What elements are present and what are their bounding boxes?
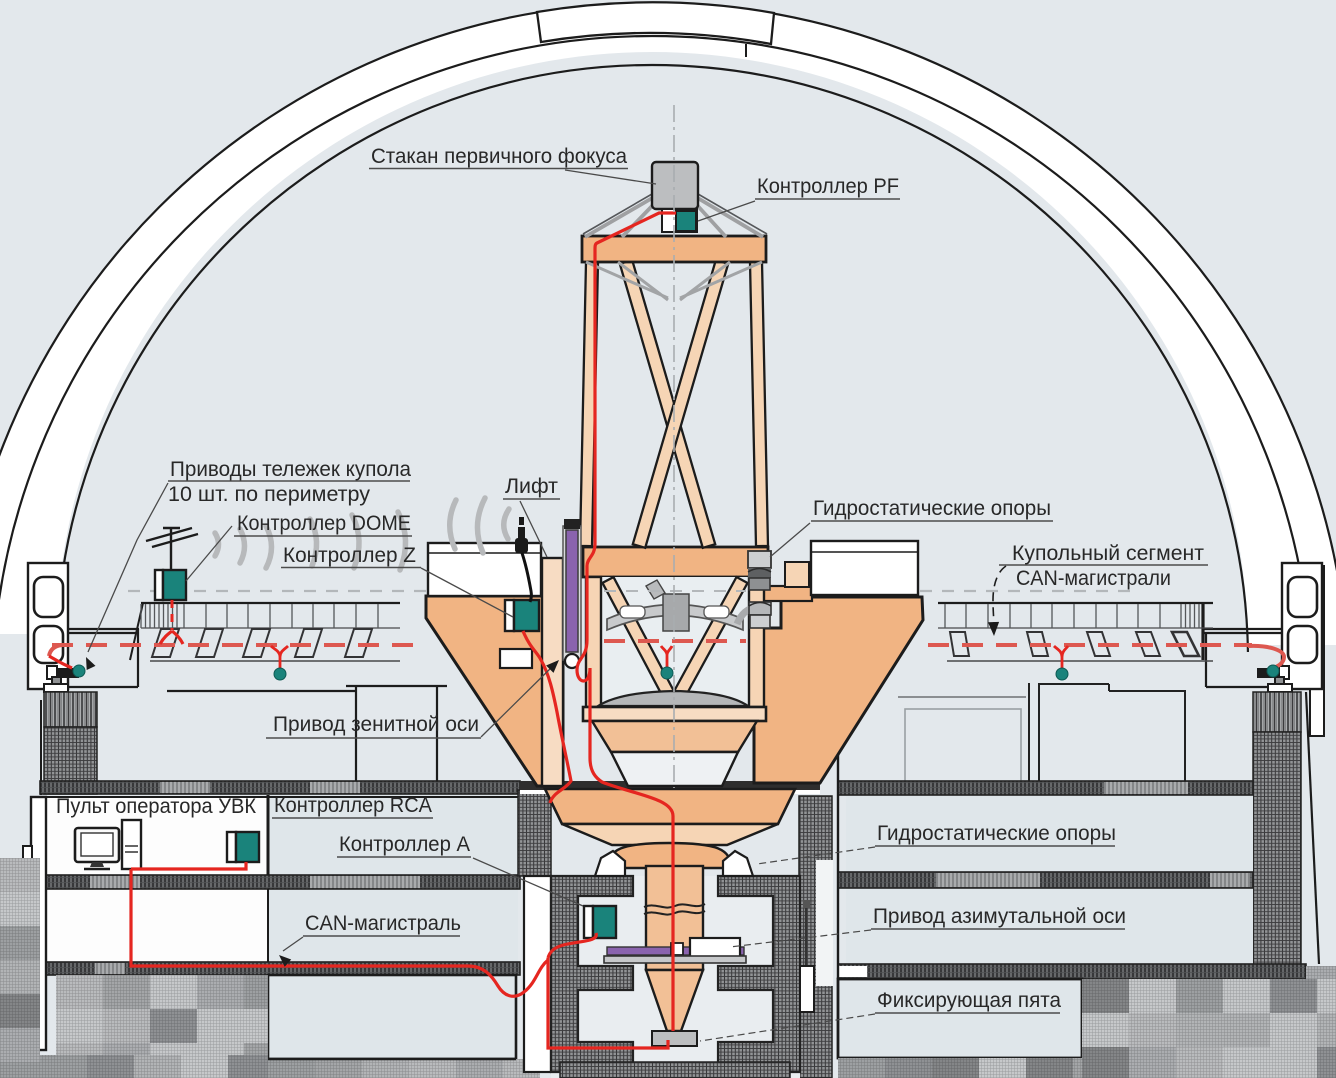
svg-text:Приводы тележек купола: Приводы тележек купола [170,457,411,481]
svg-text:Стакан первичного фокуса: Стакан первичного фокуса [371,144,627,168]
svg-text:Контроллер RCA: Контроллер RCA [274,793,433,817]
svg-text:Гидростатические опоры: Гидростатические опоры [877,821,1116,845]
svg-text:Фиксирующая пята: Фиксирующая пята [877,988,1061,1012]
svg-text:Лифт: Лифт [505,474,558,498]
svg-text:Привод зенитной оси: Привод зенитной оси [273,712,479,736]
svg-text:Купольный сегмент: Купольный сегмент [1012,541,1204,565]
svg-text:CAN-магистраль: CAN-магистраль [305,911,461,935]
svg-text:10 шт. по периметру: 10 шт. по периметру [168,482,370,506]
svg-text:Контроллер DOME: Контроллер DOME [237,511,411,535]
svg-text:Контроллер А: Контроллер А [339,832,471,856]
svg-text:Пульт оператора УВК: Пульт оператора УВК [56,794,256,818]
svg-text:Гидростатические опоры: Гидростатические опоры [813,496,1051,520]
svg-text:Привод азимутальной оси: Привод азимутальной оси [873,904,1126,928]
svg-text:Контроллер Z: Контроллер Z [283,543,416,567]
svg-text:Контроллер PF: Контроллер PF [757,174,899,198]
svg-text:CAN-магистрали: CAN-магистрали [1016,566,1171,590]
